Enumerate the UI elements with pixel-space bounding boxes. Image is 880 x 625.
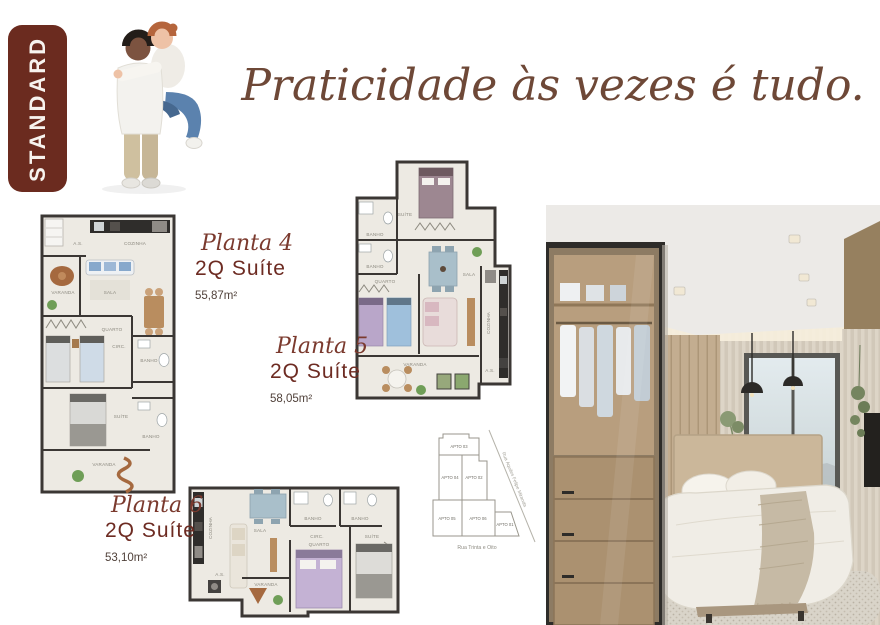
room-label: SALA	[254, 528, 267, 533]
couple-photo	[72, 8, 212, 196]
street-label-bottom: Rua Trinta e Oito	[457, 545, 496, 551]
street-label-diagonal: Rua Aquiles Felipe Miranda	[500, 451, 528, 508]
site-unit-label: APTO 03	[450, 444, 468, 449]
standard-badge-label: STANDARD	[25, 36, 51, 182]
tv-screen	[864, 413, 880, 487]
room-label: QUARTO	[309, 542, 330, 547]
planta-4-name: Planta 4	[195, 231, 293, 256]
room-label: A.S.	[215, 572, 224, 577]
room-label: A.S.	[73, 241, 82, 246]
site-unit-label: APTO 04	[441, 475, 459, 480]
site-unit-label: APTO 01	[496, 522, 514, 527]
site-plan-diagram: APTO 03 APTO 04 APTO 02 APTO 05 APTO 06 …	[425, 428, 547, 552]
room-label: BANHO	[366, 264, 384, 269]
room-label: COZINHA	[208, 516, 213, 539]
room-label: COZINHA	[124, 241, 147, 246]
room-label: BANHO	[304, 516, 322, 521]
site-unit-label: APTO 02	[465, 475, 483, 480]
brochure-page: STANDARD Praticidade às vezes é tudo.	[0, 0, 880, 625]
planta-4-label: Planta 4 2Q Suíte 55,87m²	[195, 231, 293, 302]
site-unit-label: APTO 05	[438, 516, 456, 521]
wardrobe	[546, 245, 668, 625]
room-label: SUÍTE	[114, 413, 129, 419]
wood-panel	[844, 221, 880, 335]
floorplan-planta-5: SUÍTE BANHO BANHO QUARTO SALA	[353, 158, 513, 410]
room-label: VARANDA	[92, 462, 116, 467]
room-label: A.S.	[485, 368, 494, 373]
headline: Praticidade às vezes é tudo.	[233, 42, 873, 128]
site-unit-label: APTO 06	[469, 516, 487, 521]
room-label: VARANDA	[51, 290, 75, 295]
planta-5-label: Planta 5 2Q Suíte 58,05m²	[270, 334, 368, 405]
planta-6-label: Planta 6 2Q Suíte 53,10m²	[105, 493, 203, 564]
planta-5-type: 2Q Suíte	[270, 360, 368, 384]
man-pants	[124, 128, 140, 180]
room-label: COZINHA	[486, 311, 491, 334]
room-label: SALA	[463, 272, 476, 277]
room-label: QUARTO	[102, 327, 123, 332]
planta-4-type: 2Q Suíte	[195, 257, 293, 281]
room-label: SALA	[104, 290, 117, 295]
bedroom-photo	[546, 205, 880, 625]
room-label: SUÍTE	[398, 211, 413, 217]
room-label: BANHO	[140, 358, 158, 363]
planta-5-area: 58,05m²	[270, 393, 368, 405]
planta-6-name: Planta 6	[105, 493, 203, 518]
room-label: BANHO	[142, 434, 160, 439]
room-label: CIRC.	[112, 344, 126, 349]
planta-6-area: 53,10m²	[105, 552, 203, 564]
room-label: BANHO	[351, 516, 369, 521]
room-label: CIRC.	[310, 534, 324, 539]
planta-4-area: 55,87m²	[195, 290, 293, 302]
room-label: QUARTO	[375, 279, 396, 284]
woman-sneaker	[186, 138, 202, 149]
floorplan-planta-6: COZINHA A.S. SALA VARANDA BANHO BANHO CI…	[186, 482, 402, 620]
room-label: VARANDA	[254, 582, 278, 587]
planta-5-name: Planta 5	[270, 334, 368, 359]
room-label: BANHO	[366, 232, 384, 237]
dining-table	[144, 296, 164, 328]
planta-6-type: 2Q Suíte	[105, 519, 203, 543]
floorplan-planta-4: A.S. COZINHA VARANDA SALA QUARTO CIRC.	[32, 212, 182, 498]
standard-badge: STANDARD	[8, 25, 67, 192]
room-label: SUÍTE	[365, 533, 380, 539]
